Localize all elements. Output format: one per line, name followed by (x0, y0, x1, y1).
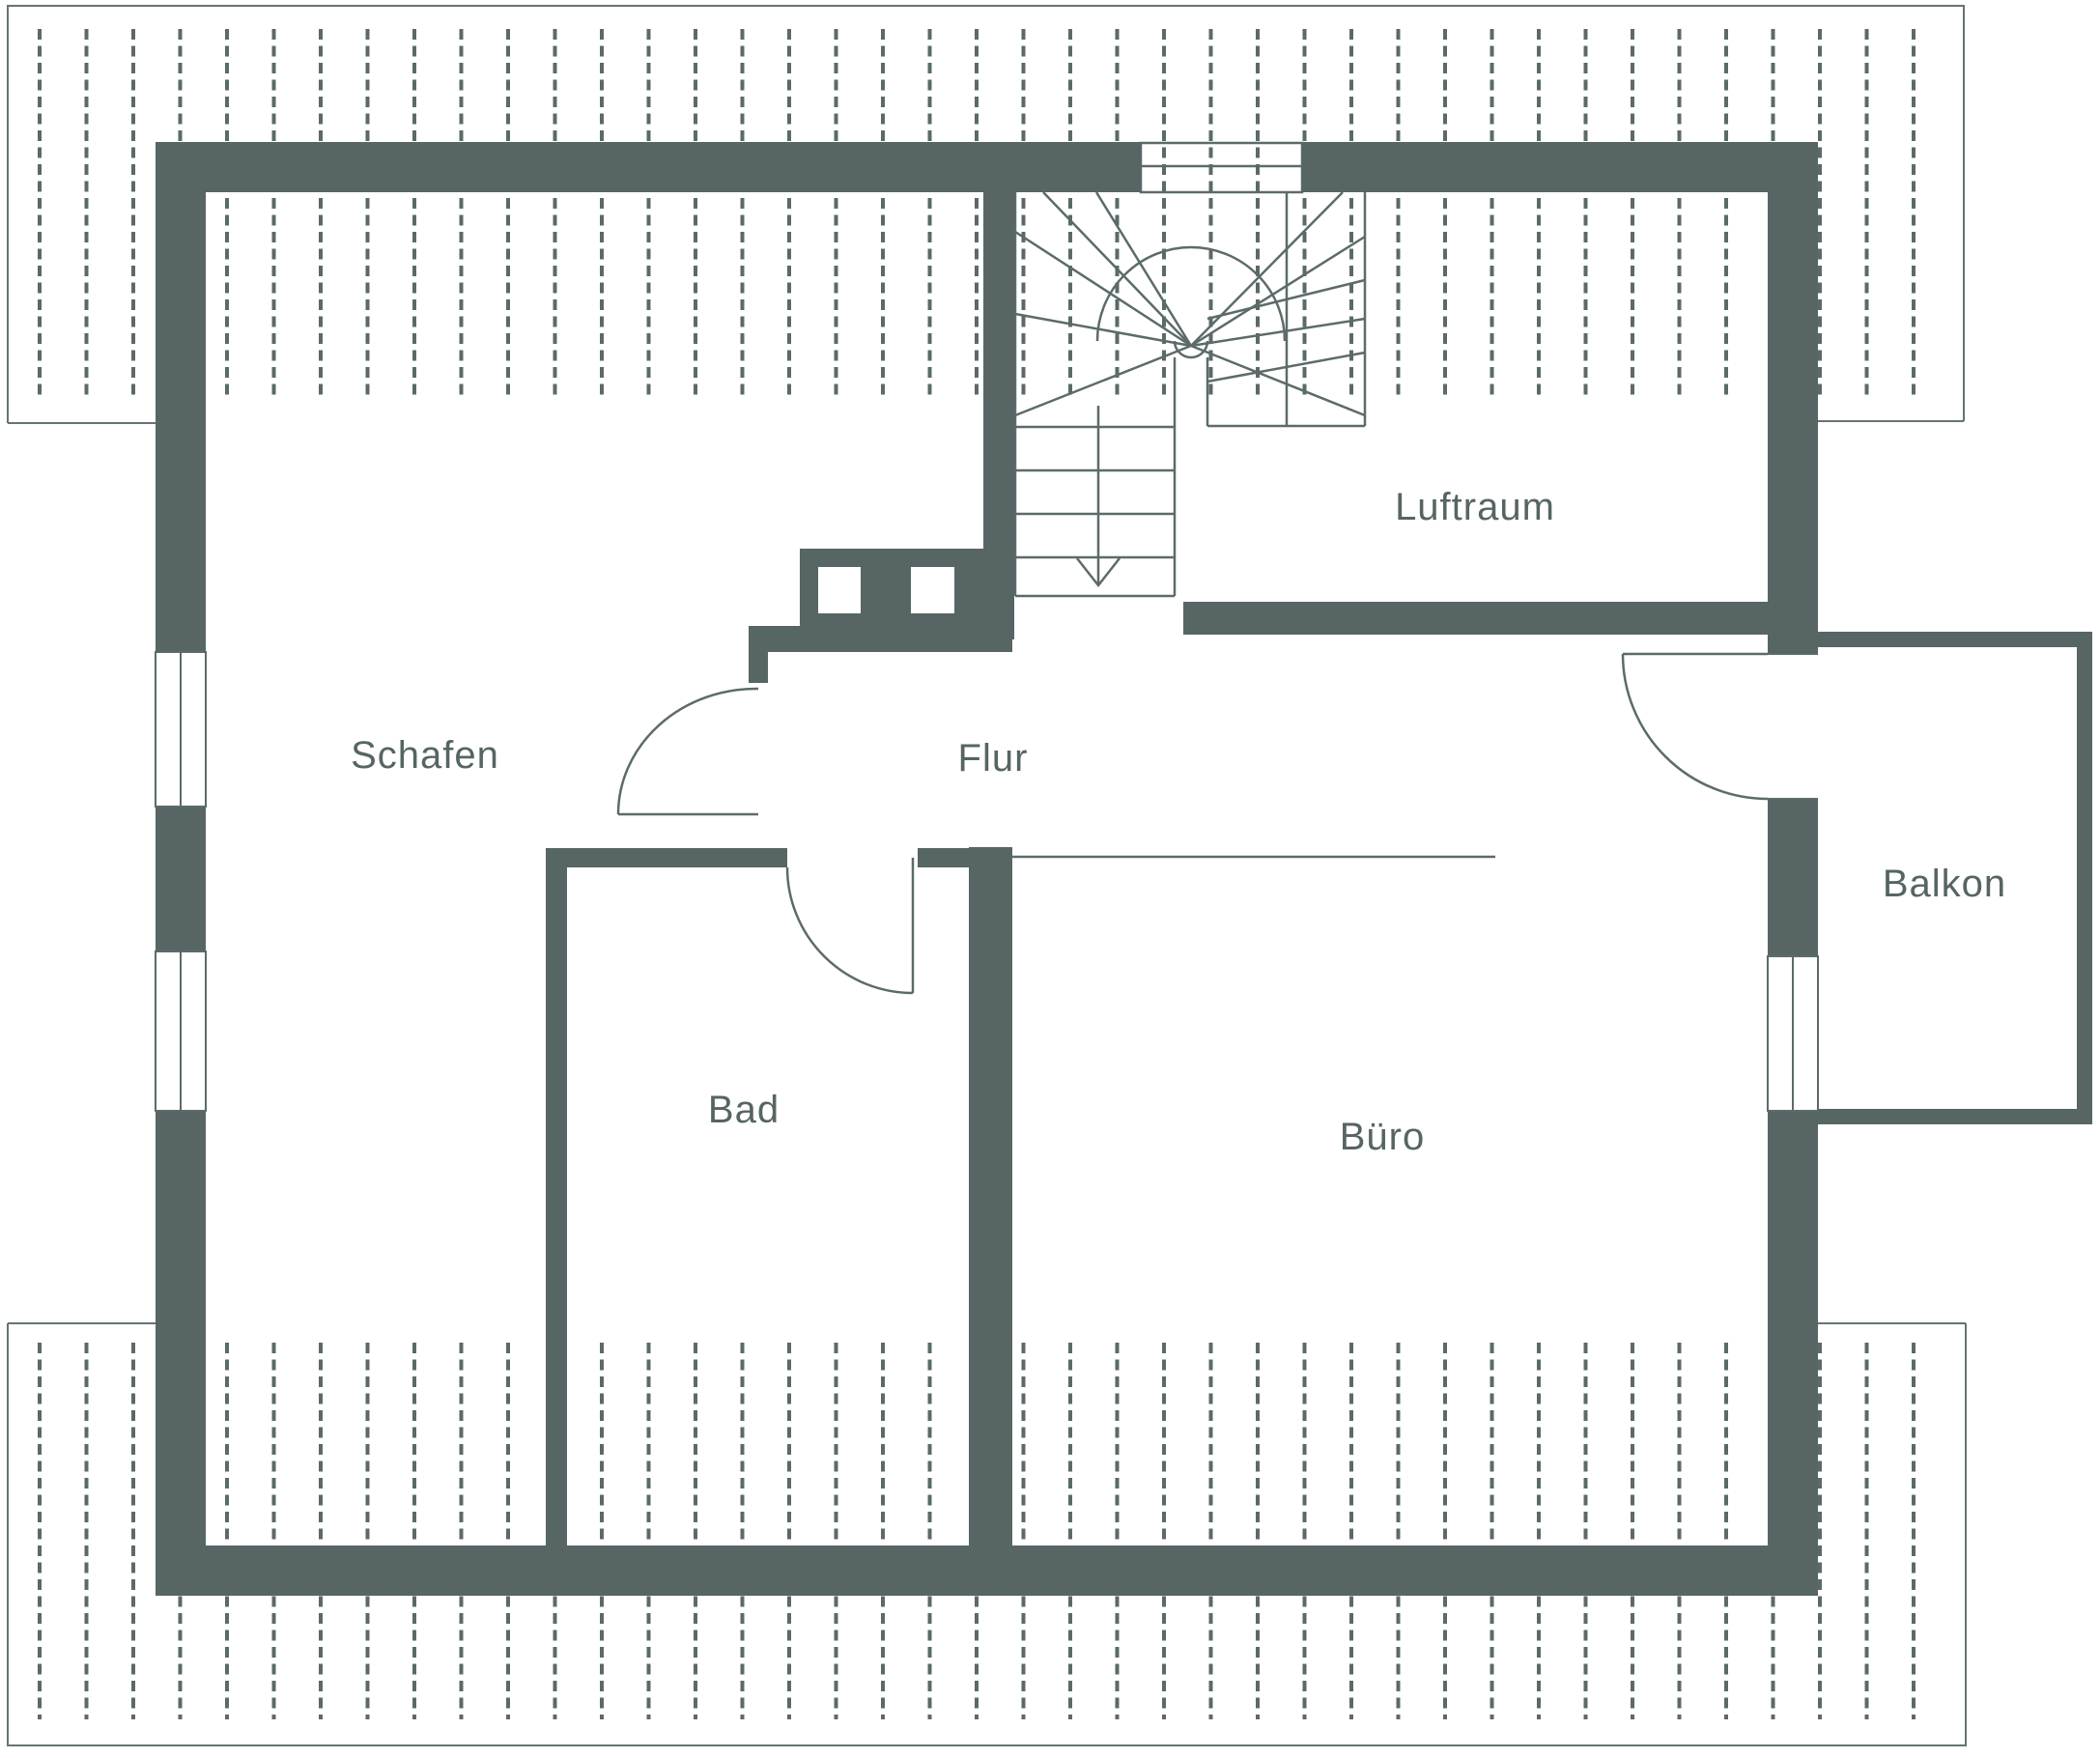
wall-left (156, 142, 206, 1596)
room-label-balkon: Balkon (1883, 863, 2006, 905)
chimney-block (748, 549, 1012, 690)
wall-top-left (156, 142, 1141, 192)
wall-right (1768, 142, 1818, 1596)
bad-door (787, 858, 913, 993)
room-label-schafen: Schafen (351, 734, 499, 777)
floor-plan-svg: Schafen Flur Luftraum Bad Büro Balkon (0, 0, 2100, 1758)
wall-bad-top-east (918, 848, 969, 867)
room-label-bad: Bad (708, 1089, 780, 1131)
interior-walls (546, 192, 1768, 1545)
bad-door-swing-arc (787, 867, 913, 993)
stair-treads-right-flight (1207, 192, 1365, 426)
room-labels: Schafen Flur Luftraum Bad Büro Balkon (351, 486, 2006, 1158)
floor-plan-page: Schafen Flur Luftraum Bad Büro Balkon (0, 0, 2100, 1758)
window-left-1 (156, 652, 206, 807)
wall-bad-top-west (546, 848, 787, 867)
room-label-flur: Flur (958, 737, 1029, 780)
wall-top-right (1302, 142, 1818, 192)
wall-bottom (156, 1545, 1818, 1596)
balcony-door-swing-arc (1623, 654, 1768, 799)
window-left-2 (156, 951, 206, 1111)
stair-treads-left-flight (1015, 427, 1175, 557)
balcony-door (1623, 654, 1818, 799)
schafen-door (618, 689, 758, 814)
roof-hatch-top (40, 29, 1914, 401)
wall-luftraum-bottom (1183, 602, 1768, 635)
stairs (1015, 143, 1365, 596)
room-label-luftraum: Luftraum (1395, 486, 1555, 528)
schafen-door-swing-arc (618, 689, 758, 814)
chimney-flue-opening (818, 567, 861, 613)
window-right (1768, 956, 1818, 1111)
room-label-buero: Büro (1340, 1116, 1426, 1158)
wall-bad-left (546, 848, 567, 1545)
wall-bad-buero (969, 847, 1012, 1545)
chimney-flue-opening (911, 567, 954, 613)
stair-winder-treads (1015, 192, 1365, 415)
